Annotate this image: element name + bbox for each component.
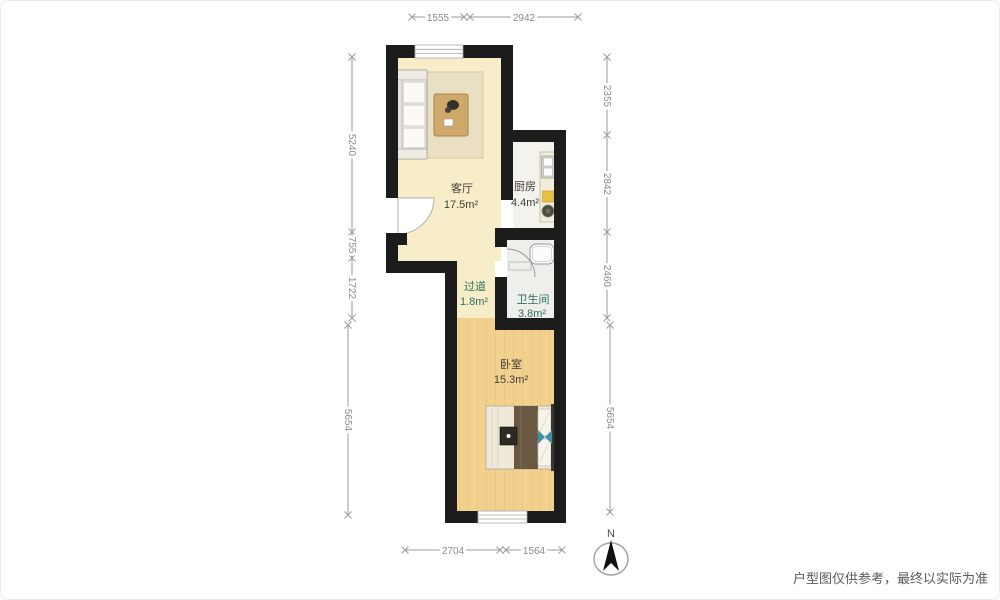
dim-bottom-2: 1564 xyxy=(523,546,546,557)
svg-text:卫生间: 卫生间 xyxy=(517,292,550,306)
dim-top-2: 2942 xyxy=(513,13,536,24)
dim-right-2: 2842 xyxy=(601,173,612,196)
book xyxy=(444,119,453,126)
compass-north-label: N xyxy=(607,528,615,540)
wall-bath-left-upper xyxy=(495,228,507,247)
bedside-unit xyxy=(500,427,517,445)
dimensions-right: 2355 2842 2460 5654 xyxy=(601,54,615,516)
window-top xyxy=(415,45,463,58)
dim-right-4: 5654 xyxy=(604,407,615,430)
floorplan-page: 客厅 17.5m² 厨房 4.4m² 过道 1.8m² 卫生间 3.8m² 卧室… xyxy=(0,0,1000,600)
dim-right-1: 2355 xyxy=(601,85,612,108)
bedroom-furniture xyxy=(486,404,557,471)
svg-text:厨房: 厨房 xyxy=(514,180,536,193)
dim-left-2: 755 xyxy=(346,237,357,254)
window-bottom xyxy=(478,511,527,523)
dim-left-1: 5240 xyxy=(346,134,357,157)
dim-bottom-1: 2704 xyxy=(442,546,465,557)
footer-disclaimer: 户型图仅供参考，最终以实际为准 xyxy=(793,571,988,586)
kitchen-stove xyxy=(542,205,554,217)
svg-text:4.4m²: 4.4m² xyxy=(511,197,539,209)
kitchen-sink xyxy=(542,156,555,178)
wall-kitchen-left-upper xyxy=(501,142,513,200)
kitchen-appliance xyxy=(543,191,554,202)
svg-text:3.8m²: 3.8m² xyxy=(518,308,546,320)
dim-left-4: 5654 xyxy=(342,409,353,432)
compass: N xyxy=(594,528,628,575)
bed xyxy=(486,404,557,471)
blanket xyxy=(514,406,538,469)
living-room-furniture xyxy=(394,70,483,159)
dimensions-bottom: 2704 1564 xyxy=(402,546,566,557)
floorplan-svg: 客厅 17.5m² 厨房 4.4m² 过道 1.8m² 卫生间 3.8m² 卧室… xyxy=(0,0,1000,600)
svg-text:15.3m²: 15.3m² xyxy=(494,374,529,386)
wall-left-upper xyxy=(386,45,398,198)
coffee-table xyxy=(434,94,468,136)
dimensions-top: 1555 2942 xyxy=(409,13,582,24)
wall-kitchen-top xyxy=(501,130,566,142)
svg-text:1.8m²: 1.8m² xyxy=(460,296,488,308)
dim-top-1: 1555 xyxy=(427,13,450,24)
sofa xyxy=(394,70,427,159)
wall-bottom-left xyxy=(445,511,478,523)
svg-text:过道: 过道 xyxy=(464,279,486,293)
kitchen-furniture xyxy=(540,152,556,222)
svg-text:17.5m²: 17.5m² xyxy=(444,199,479,211)
svg-text:客厅: 客厅 xyxy=(451,181,473,195)
bathtub xyxy=(530,244,554,264)
dim-right-3: 2460 xyxy=(601,265,612,288)
svg-text:卧室: 卧室 xyxy=(500,357,522,371)
dim-left-3: 1722 xyxy=(346,277,357,300)
wall-bedroom-left xyxy=(445,261,457,523)
wall-living-right xyxy=(501,45,513,142)
dimensions-left: 5240 755 1722 5654 xyxy=(342,54,357,519)
